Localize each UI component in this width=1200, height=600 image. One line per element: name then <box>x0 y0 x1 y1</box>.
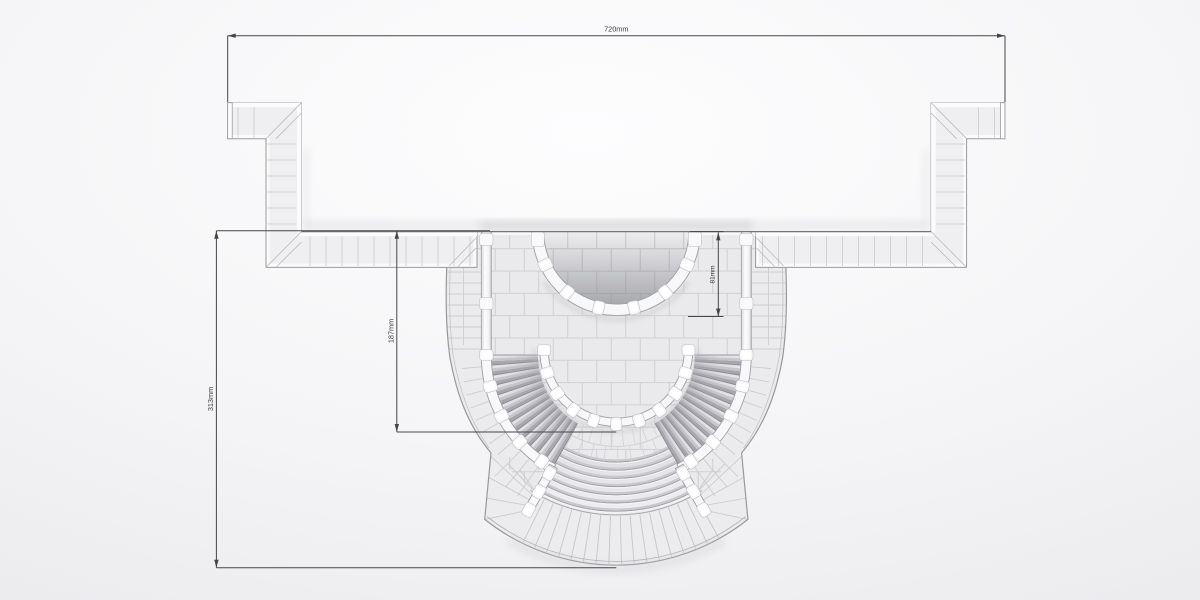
svg-text:313mm: 313mm <box>206 387 215 411</box>
svg-text:720mm: 720mm <box>604 25 628 34</box>
svg-text:81mm: 81mm <box>709 265 716 283</box>
svg-text:187mm: 187mm <box>386 319 395 343</box>
